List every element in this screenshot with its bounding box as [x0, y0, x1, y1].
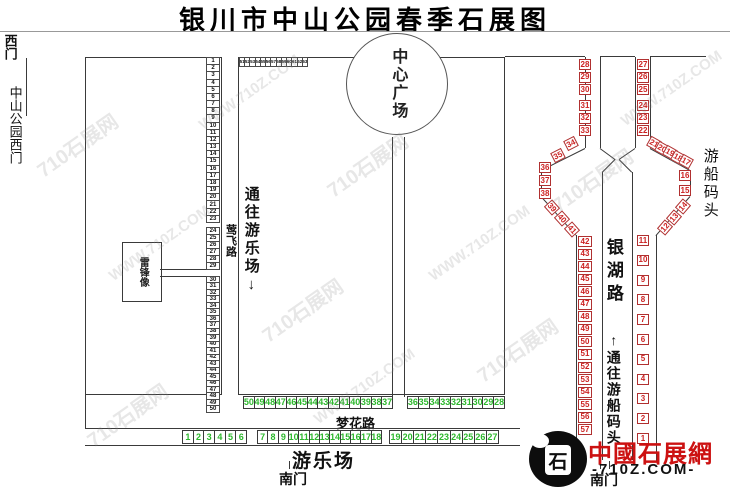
yingfei-road-label: 莺飞路 [224, 224, 236, 257]
stone-black-50: 50 [206, 405, 220, 412]
stone-red-49: 49 [578, 324, 592, 335]
leifeng-statue-box: 雷锋像 [122, 242, 162, 302]
center-road-line [392, 137, 393, 397]
to-boat-dock-text: 通往游船码头 [606, 350, 622, 446]
stone-red-33: 33 [579, 125, 591, 136]
road-line [650, 57, 651, 148]
stone-red-8: 8 [637, 294, 649, 305]
stone-red-10: 10 [637, 255, 649, 266]
stone-red-46: 46 [578, 286, 592, 297]
stone-red-53: 53 [578, 374, 592, 385]
stone-red-9: 9 [637, 275, 649, 286]
gate-tick [298, 461, 299, 469]
black-stone-column-mid: 242526272829 [206, 228, 220, 270]
to-amusement-text: 通往游乐场 [243, 186, 260, 276]
statue-path-line [160, 269, 206, 270]
seal-glyph: 石 [545, 445, 571, 475]
up-arrow-icon: ↑ [606, 332, 622, 350]
green-stone-row-a-left: 5049484746454443424140393837 [244, 396, 393, 409]
road-line [600, 57, 601, 148]
island-line [600, 148, 616, 160]
stone-red-55: 55 [578, 399, 592, 410]
stone-red-5: 5 [637, 354, 649, 365]
stone-red-47: 47 [578, 299, 592, 310]
stone-green-18: 18 [371, 430, 382, 444]
statue-path-line [160, 276, 206, 277]
green-stone-row-b-2: 789101112131415161718 [258, 430, 382, 444]
island-line [619, 148, 635, 160]
stone-red-54: 54 [578, 387, 592, 398]
south-gate-east-label: 南门 [590, 470, 618, 490]
stone-red-52: 52 [578, 362, 592, 373]
island-line [602, 159, 615, 172]
stone-red-28: 28 [579, 59, 591, 70]
stone-red-44: 44 [578, 261, 592, 272]
stone-red-29: 29 [579, 72, 591, 83]
to-amusement-label: 通往游乐场↓ [243, 186, 259, 296]
black-stone-column-lower: 3031323334353637383940414243444546474849… [206, 277, 220, 413]
park-map-page: { "title": "银川市中山公园春季石展图", "watermark": … [0, 0, 730, 489]
stone-green-6: 6 [235, 430, 247, 444]
stone-red-3: 3 [637, 393, 649, 404]
west-edge-extension [85, 395, 86, 428]
stone-red-25: 25 [637, 84, 649, 95]
stone-green-27: 27 [486, 430, 499, 444]
stone-red-48: 48 [578, 311, 592, 322]
west-exhibit-panel [85, 57, 222, 395]
center-plaza-label: 中心广场 [389, 48, 406, 120]
boat-dock-label: 游船码头 [702, 148, 718, 220]
stone-red-7: 7 [637, 314, 649, 325]
stone-red-34: 34 [563, 136, 579, 151]
lane-line [632, 172, 633, 460]
stone-red-30: 30 [579, 84, 591, 95]
stone-red-32: 32 [579, 113, 591, 124]
stone-red-42: 42 [578, 236, 592, 247]
west-gate-full-label: 中山公园西门 [8, 86, 22, 164]
stone-green-37: 37 [381, 396, 393, 409]
stone-red-43: 43 [578, 249, 592, 260]
stone-red-17: 17 [678, 154, 694, 169]
down-arrow-icon: ↓ [243, 276, 260, 296]
stone-red-23: 23 [637, 113, 649, 124]
boundary-line [505, 56, 585, 57]
stone-red-22: 22 [637, 125, 649, 136]
gate-tick [289, 461, 290, 469]
lane-line [576, 235, 577, 462]
stone-green-28: 28 [493, 396, 505, 409]
green-stone-row-b-1: 123456 [183, 430, 247, 444]
stone-red-4: 4 [637, 374, 649, 385]
title-divider [0, 31, 730, 32]
stone-black-29: 29 [206, 262, 220, 270]
green-stone-row-b-3: 192021222324252627 [390, 430, 499, 444]
lane-line [602, 172, 603, 460]
walkway-line [85, 428, 520, 429]
to-boat-dock-label: ↑通往游船码头 [606, 332, 621, 446]
stone-red-35: 35 [550, 148, 566, 163]
stone-red-56: 56 [578, 412, 592, 423]
boundary-line [650, 56, 706, 57]
stone-red-51: 51 [578, 349, 592, 360]
stone-red-36: 36 [539, 162, 551, 173]
stone-red-6: 6 [637, 334, 649, 345]
leifeng-statue-label: 雷锋像 [137, 257, 148, 287]
stone-red-15: 15 [679, 185, 691, 196]
west-gate-label: 西门 [3, 34, 17, 60]
west-boundary-line [26, 58, 27, 116]
yinhu-road-label: 银湖路 [604, 238, 622, 307]
stone-black-23: 23 [206, 215, 220, 223]
black-stone-top-row: 51525354555657585960616263 [240, 57, 308, 67]
stone-red-38: 38 [539, 188, 551, 199]
stone-red-16: 16 [679, 170, 691, 181]
center-plaza-circle: 中心广场 [346, 33, 448, 135]
center-road-line [404, 137, 405, 397]
stone-red-27: 27 [637, 59, 649, 70]
green-stone-row-a-right: 363534333231302928 [408, 396, 505, 409]
watermark: WWW.710Z.COM [618, 47, 725, 129]
stone-red-11: 11 [637, 235, 649, 246]
stone-red-50: 50 [578, 336, 592, 347]
stone-red-26: 26 [637, 72, 649, 83]
stone-black-63: 63 [302, 57, 308, 67]
stone-red-2: 2 [637, 413, 649, 424]
road-line [635, 57, 636, 148]
stone-red-45: 45 [578, 274, 592, 285]
stone-red-24: 24 [637, 100, 649, 111]
domain-dash: - [688, 461, 695, 478]
stone-red-31: 31 [579, 100, 591, 111]
black-stone-column-upper: 1234567891011121314151617181920212223 [206, 58, 220, 223]
stone-red-37: 37 [539, 175, 551, 186]
island-line [619, 159, 632, 172]
lane-line [656, 235, 657, 462]
boundary-line [600, 56, 635, 57]
stone-net-seal-icon: 石 [529, 431, 587, 487]
south-gate-center-label: 南门 [279, 469, 307, 489]
